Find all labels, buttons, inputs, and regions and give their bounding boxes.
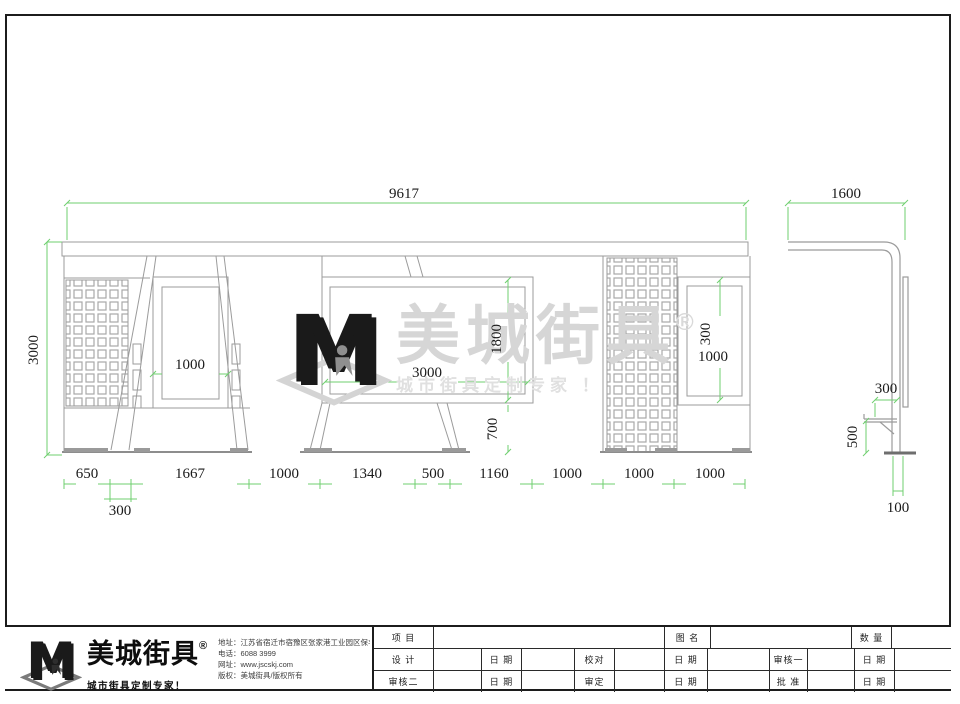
dim-foot-width: 300 <box>109 503 132 519</box>
titleblock-label-quantity: 数 量 <box>852 627 892 648</box>
titleblock-label-proofread: 校对 <box>575 649 615 670</box>
titleblock-field-quantity <box>892 627 951 648</box>
dim-side-width: 1600 <box>831 186 861 202</box>
titleblock-label-date: 日 期 <box>665 649 708 670</box>
titleblock-row-1: 项 目 图 名 数 量 <box>374 627 951 649</box>
dim-under-billboard: 700 <box>485 418 501 441</box>
dim-seat-height: 500 <box>845 426 861 449</box>
titleblock-label-date: 日 期 <box>482 649 522 670</box>
contact-copyright: 版权：美城街具/版权所有 <box>218 670 370 681</box>
titleblock-label-date: 日 期 <box>855 649 895 670</box>
company-contact-block: 地址：江苏省宿迁市宿豫区张家港工业园区保丰路南侧1号 电话：6088 3999 … <box>218 637 370 681</box>
dim-bottom-2: 1000 <box>269 466 299 482</box>
dim-total-width: 9617 <box>389 186 420 202</box>
company-m-logo-icon <box>20 629 82 691</box>
titleblock-label-drawing-name: 图 名 <box>665 627 711 648</box>
contact-address: 地址：江苏省宿迁市宿豫区张家港工业园区保丰路南侧1号 <box>218 637 370 648</box>
titleblock-label-date: 日 期 <box>665 671 708 692</box>
titleblock-field-date <box>708 671 770 692</box>
dim-seat-depth: 300 <box>875 381 898 397</box>
titleblock-label-review2: 审核二 <box>374 671 434 692</box>
titleblock-field-review1 <box>808 649 855 670</box>
titleblock-field-date <box>522 649 575 670</box>
titleblock-field-review2 <box>434 671 482 692</box>
titleblock-field-approve-review <box>615 671 665 692</box>
titleblock-label-project: 项 目 <box>374 627 434 648</box>
dim-bottom-7: 1000 <box>624 466 654 482</box>
dim-bottom-0: 650 <box>76 466 99 482</box>
dim-bottom-6: 1000 <box>552 466 582 482</box>
titleblock-field-drawing-name <box>711 627 852 648</box>
dim-bottom-5: 1160 <box>479 466 508 482</box>
titleblock-field-project <box>434 627 665 648</box>
company-brand: 美城街具 <box>87 639 199 669</box>
dim-billboard-height: 1800 <box>489 324 505 354</box>
titleblock-label-date: 日 期 <box>855 671 895 692</box>
company-logo <box>20 629 82 691</box>
drawing-title-block-table: 项 目 图 名 数 量 设 计 日 期 校对 日 期 审核一 日 期 审核二 日… <box>372 627 951 689</box>
dim-right-poster: 1000 <box>698 349 728 365</box>
titleblock-field-authorize <box>808 671 855 692</box>
dim-bottom-4: 500 <box>422 466 445 482</box>
titleblock-label-design: 设 计 <box>374 649 434 670</box>
titleblock-label-approve-review: 审定 <box>575 671 615 692</box>
bottom-dim-labels: 650 1667 1000 1340 500 1160 1000 1000 10… <box>76 466 725 482</box>
titleblock-field-date <box>708 649 770 670</box>
titleblock-label-review1: 审核一 <box>770 649 808 670</box>
dim-bottom-8: 1000 <box>695 466 725 482</box>
dim-poster-left: 1000 <box>175 357 205 373</box>
titleblock-field-date <box>895 649 951 670</box>
titleblock-field-date <box>522 671 575 692</box>
titleblock-field-date <box>895 671 951 692</box>
company-brand-block: 美城街具® 城市街具定制专家！ <box>87 631 222 692</box>
contact-phone: 电话：6088 3999 <box>218 648 370 659</box>
title-block-strip: 美城街具® 城市街具定制专家！ 地址：江苏省宿迁市宿豫区张家港工业园区保丰路南侧… <box>5 625 951 691</box>
dim-billboard-width: 3000 <box>412 365 442 381</box>
dim-height: 3000 <box>26 335 42 365</box>
titleblock-field-design <box>434 649 482 670</box>
titleblock-field-proofread <box>615 649 665 670</box>
company-tagline: 城市街具定制专家！ <box>87 678 222 692</box>
titleblock-label-date: 日 期 <box>482 671 522 692</box>
dim-right-poster-inner: 300 <box>698 323 714 346</box>
registered-mark-icon: ® <box>199 640 208 652</box>
dim-post-base: 100 <box>887 500 910 516</box>
contact-website: 网址：www.jscskj.com <box>218 659 370 670</box>
dim-bottom-3: 1340 <box>352 466 382 482</box>
titleblock-row-3: 审核二 日 期 审定 日 期 批 准 日 期 <box>374 671 951 692</box>
titleblock-label-authorize: 批 准 <box>770 671 808 692</box>
titleblock-row-2: 设 计 日 期 校对 日 期 审核一 日 期 <box>374 649 951 671</box>
dimension-label-layer: 9617 1600 3000 1000 3000 1800 700 300 10… <box>0 0 960 620</box>
dim-bottom-1: 1667 <box>175 466 206 482</box>
